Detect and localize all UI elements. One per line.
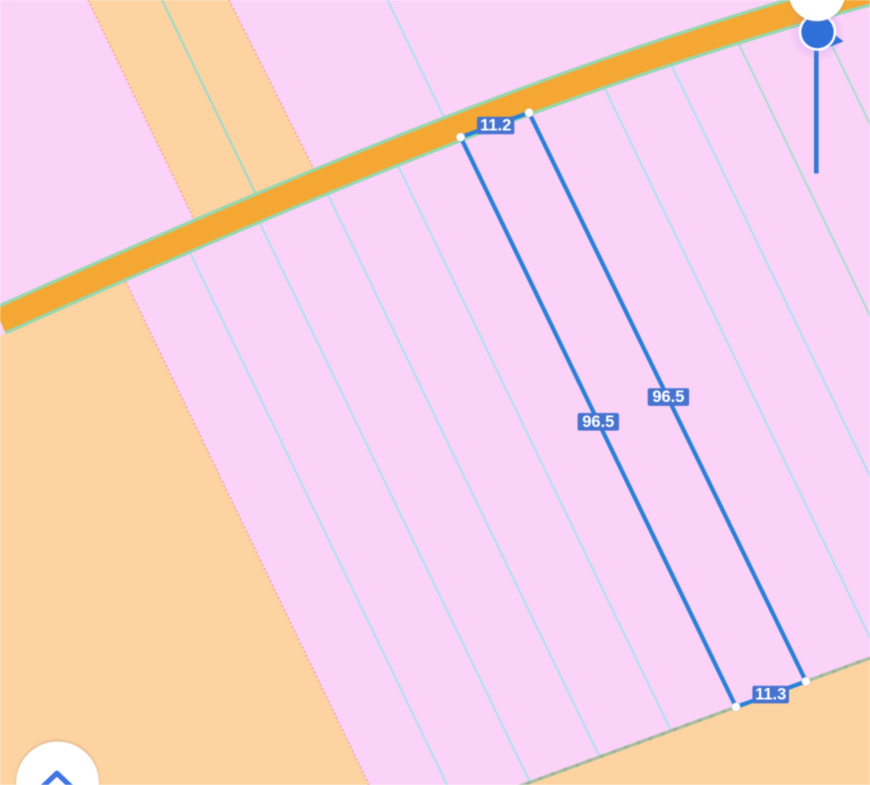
svg-text:11.2: 11.2 <box>480 117 511 135</box>
svg-text:11.3: 11.3 <box>755 686 786 704</box>
svg-text:96.5: 96.5 <box>652 388 684 406</box>
svg-text:96.5: 96.5 <box>582 413 614 431</box>
